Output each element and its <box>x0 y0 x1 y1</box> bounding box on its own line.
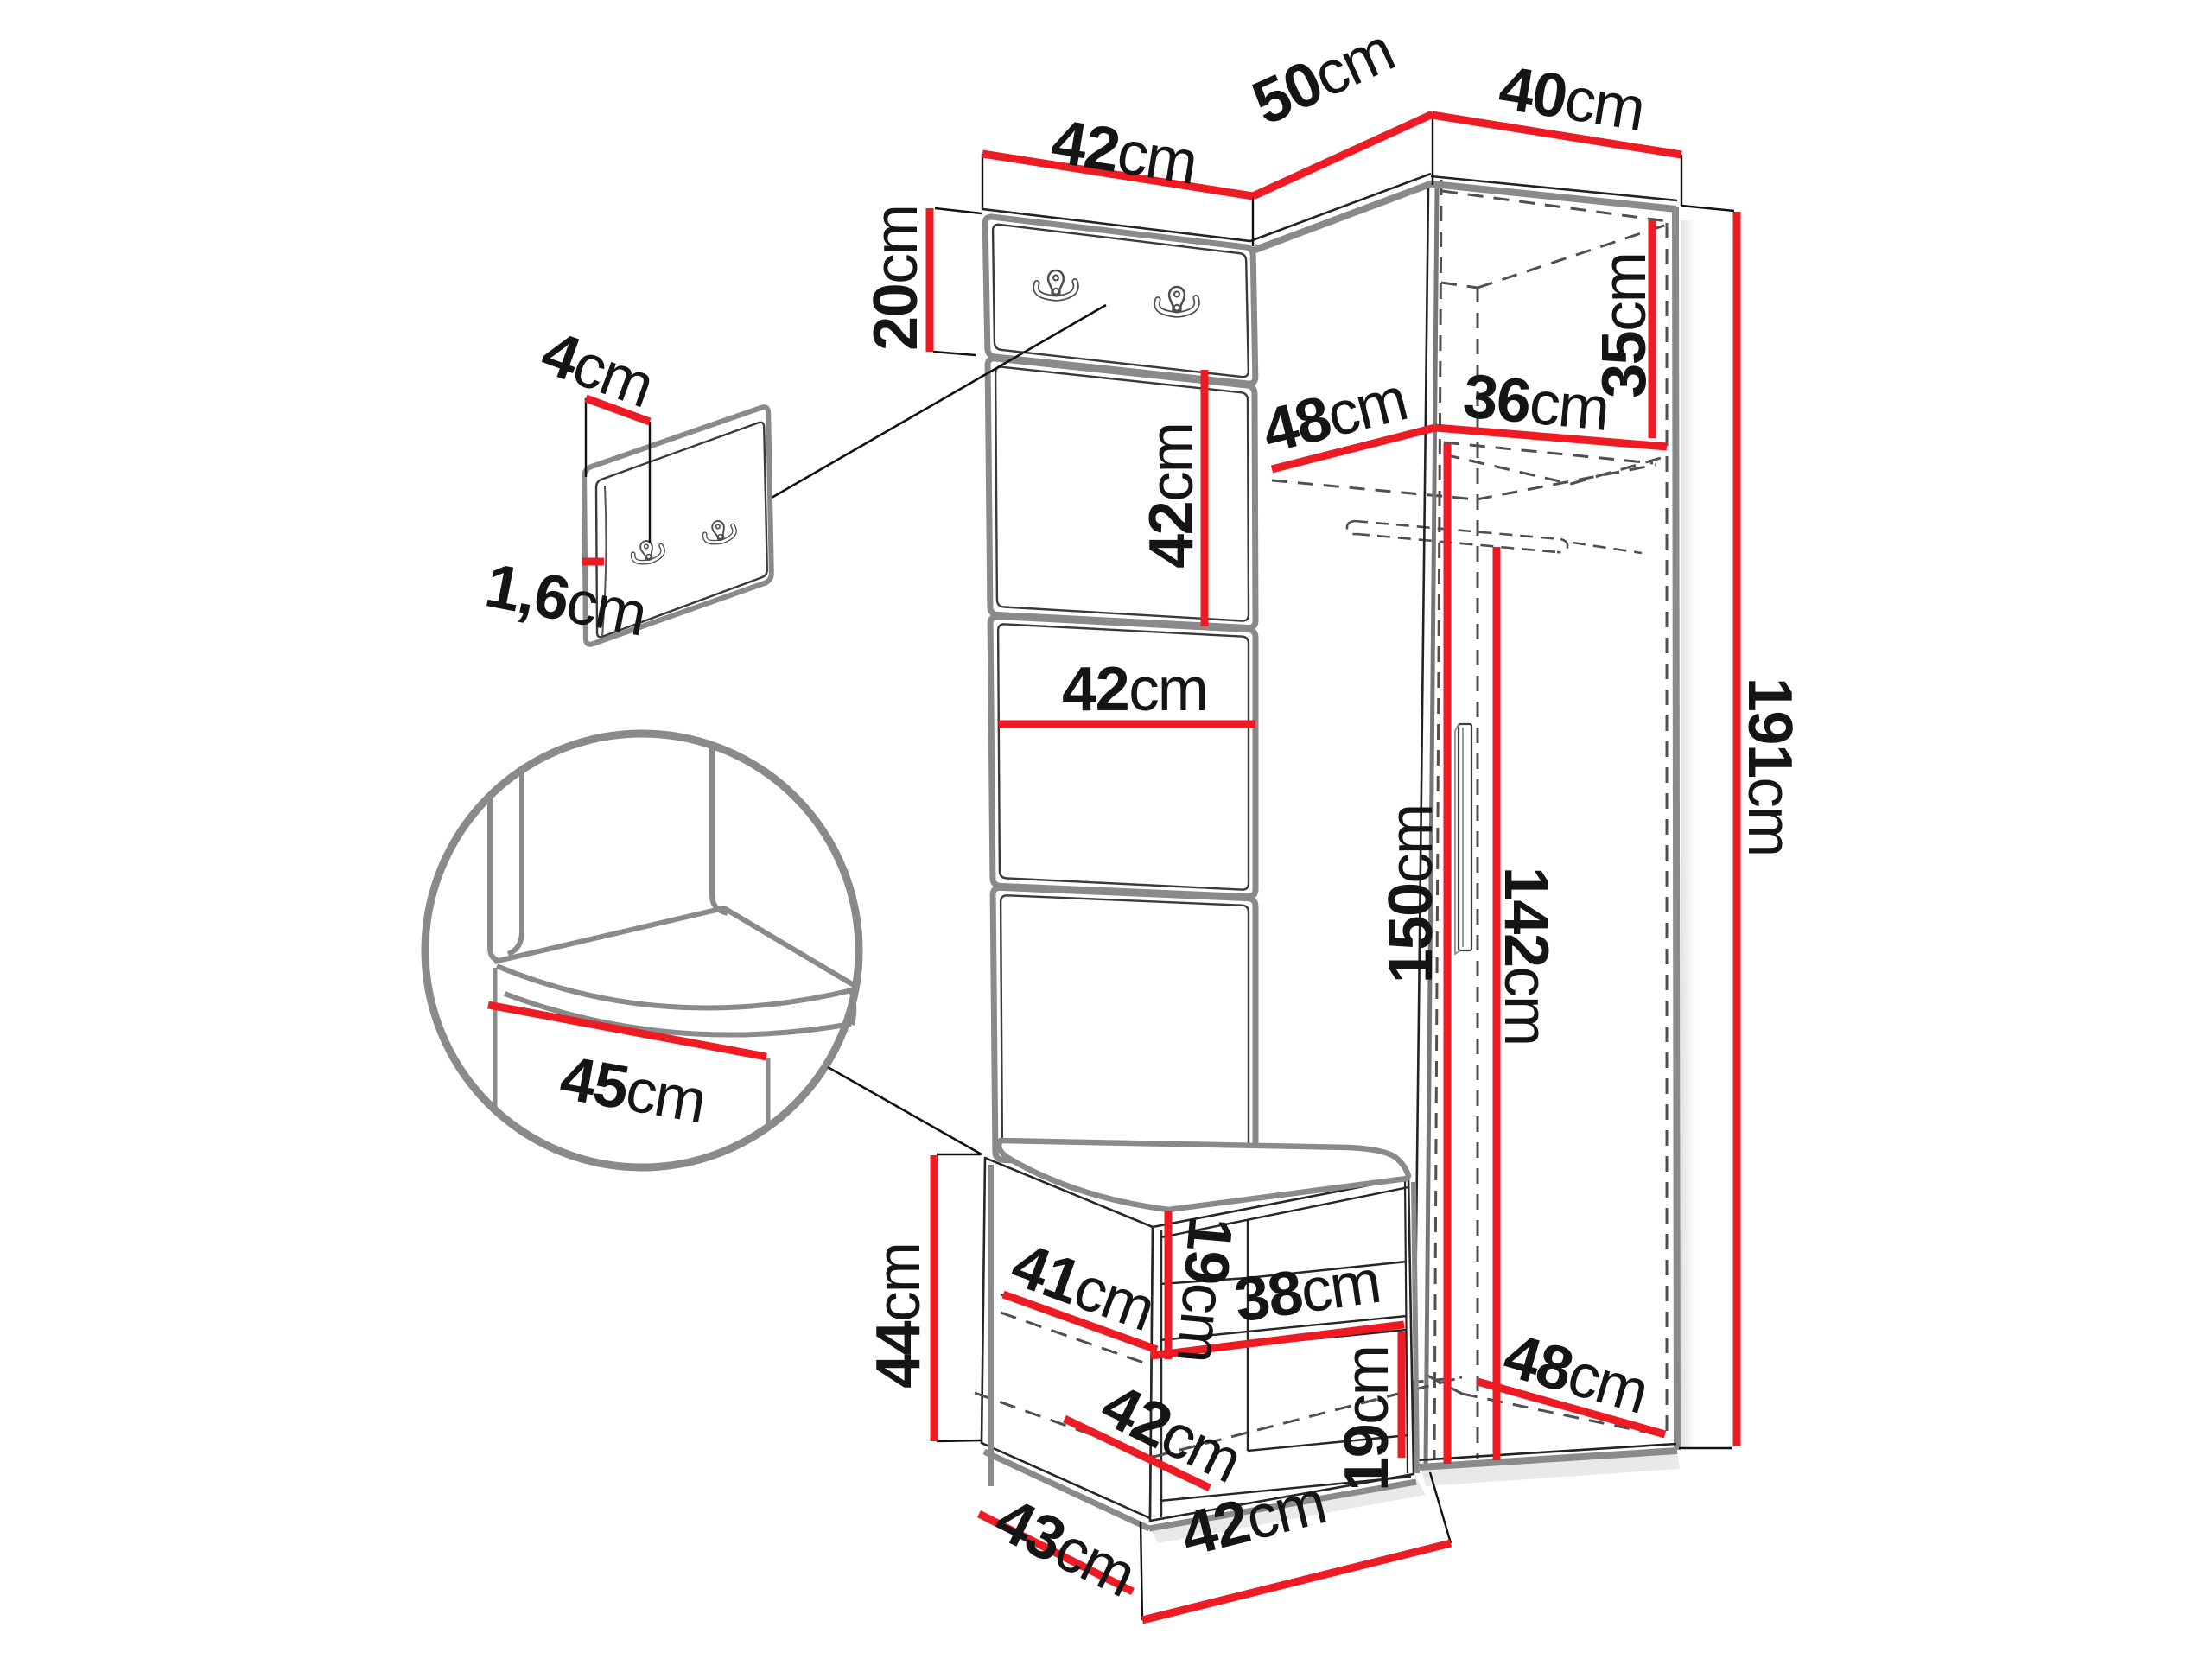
svg-text:36cm: 36cm <box>1460 361 1611 444</box>
svg-text:150cm: 150cm <box>1376 805 1446 983</box>
svg-text:35cm: 35cm <box>1590 253 1659 398</box>
svg-text:19cm: 19cm <box>1332 1346 1402 1491</box>
svg-text:44cm: 44cm <box>864 1243 933 1389</box>
svg-text:191cm: 191cm <box>1735 677 1804 855</box>
svg-text:42cm: 42cm <box>1062 655 1207 724</box>
svg-text:42cm: 42cm <box>1137 423 1206 569</box>
svg-text:20cm: 20cm <box>861 206 931 351</box>
svg-text:142cm: 142cm <box>1491 867 1560 1045</box>
